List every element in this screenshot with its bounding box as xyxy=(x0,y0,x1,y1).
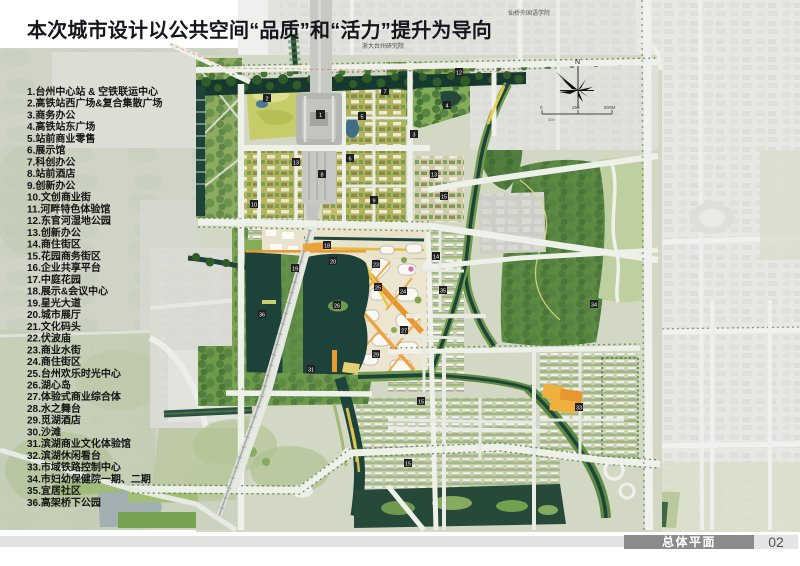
svg-text:15: 15 xyxy=(441,195,447,201)
svg-text:500M: 500M xyxy=(604,105,616,110)
svg-text:19.星光大道: 19.星光大道 xyxy=(27,296,81,309)
svg-text:25.台州欢乐时光中心: 25.台州欢乐时光中心 xyxy=(27,367,121,380)
svg-text:1.台州中心站 & 空铁联运中心: 1.台州中心站 & 空铁联运中心 xyxy=(27,85,158,98)
svg-text:11.河畔特色体验馆: 11.河畔特色体验馆 xyxy=(27,202,110,215)
svg-text:仙桥外国语学院: 仙桥外国语学院 xyxy=(508,9,550,17)
svg-text:12: 12 xyxy=(456,71,462,77)
svg-text:33: 33 xyxy=(576,406,582,412)
svg-text:18.展示&会议中心: 18.展示&会议中心 xyxy=(27,285,108,298)
svg-text:15: 15 xyxy=(405,462,411,468)
svg-text:34: 34 xyxy=(591,303,597,309)
svg-text:27.体验式商业综合体: 27.体验式商业综合体 xyxy=(27,390,122,403)
svg-text:36: 36 xyxy=(259,313,265,319)
svg-text:3: 3 xyxy=(412,133,415,139)
svg-text:2.高铁站西广场&复合集散广场: 2.高铁站西广场&复合集散广场 xyxy=(27,97,163,110)
svg-text:250: 250 xyxy=(572,105,580,110)
svg-text:19: 19 xyxy=(292,267,298,273)
svg-text:24: 24 xyxy=(400,290,406,296)
svg-text:14.商住街区: 14.商住街区 xyxy=(27,238,81,251)
svg-text:5.站前商业零售: 5.站前商业零售 xyxy=(27,132,95,145)
svg-text:33.市域铁路控制中心: 33.市域铁路控制中心 xyxy=(27,461,121,474)
svg-text:27: 27 xyxy=(401,329,407,335)
svg-text:15.花园商务街区: 15.花园商务街区 xyxy=(27,249,101,262)
svg-text:13: 13 xyxy=(431,173,437,179)
svg-text:30.沙滩: 30.沙滩 xyxy=(27,426,61,439)
svg-text:21.文化码头: 21.文化码头 xyxy=(27,320,81,333)
svg-text:34.市妇幼保健院一期、二期: 34.市妇幼保健院一期、二期 xyxy=(27,472,151,485)
svg-text:16.企业共享平台: 16.企业共享平台 xyxy=(27,261,101,274)
svg-text:36.高架桥下公园: 36.高架桥下公园 xyxy=(27,496,101,509)
svg-text:31: 31 xyxy=(308,368,314,374)
svg-text:3.商务办公: 3.商务办公 xyxy=(27,109,75,122)
svg-text:5: 5 xyxy=(360,115,363,121)
svg-text:28.水之舞台: 28.水之舞台 xyxy=(27,402,81,415)
svg-text:15: 15 xyxy=(418,400,424,406)
svg-text:29.觅湖酒店: 29.觅湖酒店 xyxy=(27,414,81,427)
svg-text:7.科创办公: 7.科创办公 xyxy=(27,155,75,168)
svg-text:35.宜居社区: 35.宜居社区 xyxy=(27,484,81,497)
svg-text:8: 8 xyxy=(320,173,323,179)
svg-text:浙大台州研究院: 浙大台州研究院 xyxy=(362,42,404,50)
svg-text:8.站前酒店: 8.站前酒店 xyxy=(27,167,75,180)
svg-text:9.创新办公: 9.创新办公 xyxy=(27,179,75,192)
svg-text:31.滨湖商业文化体验馆: 31.滨湖商业文化体验馆 xyxy=(27,437,131,450)
svg-text:2: 2 xyxy=(265,97,268,103)
svg-text:14: 14 xyxy=(433,255,439,261)
svg-text:17.中庭花园: 17.中庭花园 xyxy=(27,273,81,286)
svg-text:4.高铁站东广场: 4.高铁站东广场 xyxy=(27,120,95,133)
svg-text:26.湖心岛: 26.湖心岛 xyxy=(27,379,71,392)
svg-text:N: N xyxy=(575,59,580,66)
svg-text:6: 6 xyxy=(348,157,351,163)
svg-text:23: 23 xyxy=(373,263,379,269)
svg-text:4: 4 xyxy=(445,104,448,110)
svg-text:32.滨湖休闲看台: 32.滨湖休闲看台 xyxy=(27,449,101,462)
svg-text:13: 13 xyxy=(293,161,299,167)
svg-text:35: 35 xyxy=(440,289,446,295)
svg-text:12.东官河湿地公园: 12.东官河湿地公园 xyxy=(27,214,111,227)
svg-text:总体平面: 总体平面 xyxy=(662,534,716,549)
svg-text:26: 26 xyxy=(334,304,340,310)
svg-text:1: 1 xyxy=(319,113,322,119)
svg-text:29: 29 xyxy=(373,353,379,359)
svg-text:6.展示馆: 6.展示馆 xyxy=(27,144,65,157)
svg-text:13.创新办公: 13.创新办公 xyxy=(27,226,81,239)
svg-text:22.伏波庙: 22.伏波庙 xyxy=(27,332,71,345)
svg-text:02: 02 xyxy=(768,534,784,550)
svg-text:20.城市展厅: 20.城市展厅 xyxy=(27,308,81,321)
svg-text:10.文创商业街: 10.文创商业街 xyxy=(27,191,91,204)
svg-text:本次城市设计以公共空间“品质”和“活力”提升为导向: 本次城市设计以公共空间“品质”和“活力”提升为导向 xyxy=(27,18,492,42)
svg-text:7: 7 xyxy=(383,90,386,96)
svg-text:10: 10 xyxy=(251,203,257,209)
svg-text:23.商业水街: 23.商业水街 xyxy=(27,343,81,356)
svg-text:18: 18 xyxy=(324,244,330,250)
svg-text:25: 25 xyxy=(375,286,381,292)
svg-text:9: 9 xyxy=(372,199,375,205)
svg-text:20: 20 xyxy=(330,260,336,266)
svg-text:300: 300 xyxy=(548,117,555,122)
svg-text:24.商住街区: 24.商住街区 xyxy=(27,355,81,368)
